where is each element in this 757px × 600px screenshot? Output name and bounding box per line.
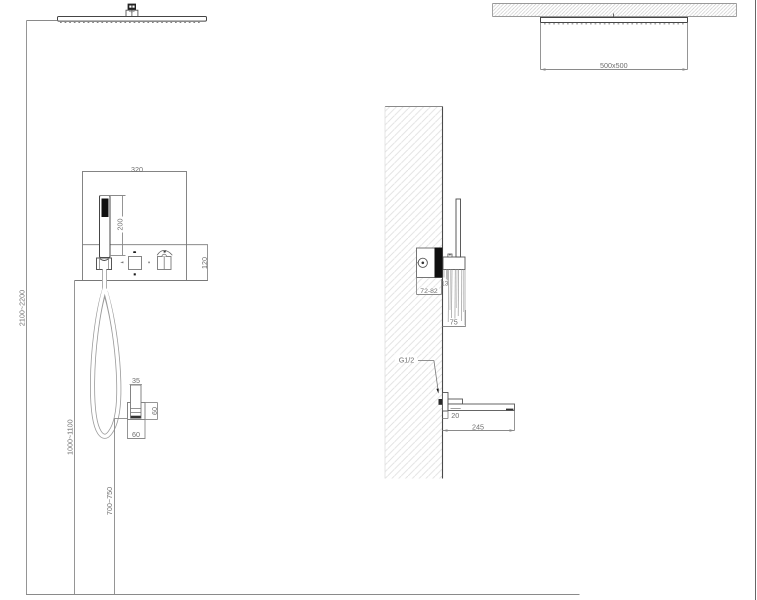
svg-text:500x500: 500x500 xyxy=(600,61,628,70)
svg-text:320: 320 xyxy=(131,165,143,174)
svg-text:13: 13 xyxy=(441,281,449,288)
svg-text:72-82: 72-82 xyxy=(420,288,438,295)
svg-text:1000~1100: 1000~1100 xyxy=(65,419,74,455)
svg-text:120: 120 xyxy=(200,257,209,269)
svg-text:245: 245 xyxy=(472,422,484,431)
svg-text:60: 60 xyxy=(150,407,159,415)
svg-text:60: 60 xyxy=(132,430,140,439)
svg-text:2100~2200: 2100~2200 xyxy=(17,290,26,326)
svg-text:35: 35 xyxy=(132,376,140,385)
svg-text:200: 200 xyxy=(115,219,124,231)
svg-text:G1/2: G1/2 xyxy=(399,356,415,365)
svg-text:75: 75 xyxy=(450,317,458,326)
svg-text:20: 20 xyxy=(451,411,459,420)
svg-text:700~750: 700~750 xyxy=(105,487,114,515)
